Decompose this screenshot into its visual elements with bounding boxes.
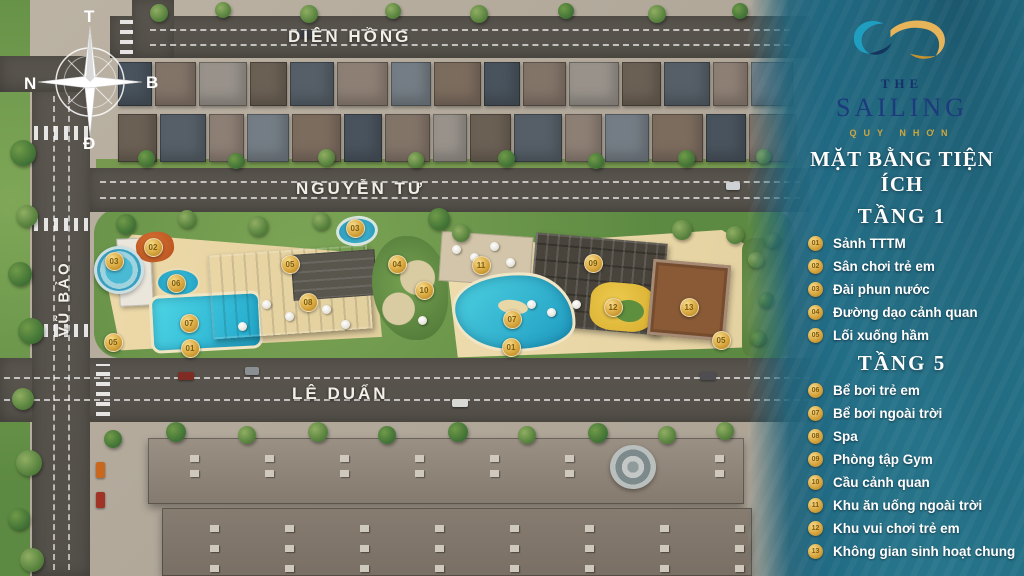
roof-vent <box>210 545 219 552</box>
compass-rose: T B Đ N <box>24 10 164 150</box>
roof-vent <box>510 565 519 572</box>
townhouse <box>391 62 431 106</box>
map-marker-01: 01 <box>181 339 200 358</box>
legend-coin-icon: 12 <box>808 521 823 536</box>
umbrella-icon <box>238 322 247 331</box>
car-icon <box>700 372 716 380</box>
tree-icon <box>378 426 396 444</box>
tree-icon <box>726 226 744 244</box>
legend-label: Phòng tập Gym <box>833 452 933 467</box>
tree-icon <box>178 210 196 228</box>
tree-icon <box>248 216 268 236</box>
tree-icon <box>732 3 748 19</box>
brand-location: QUY NHƠN <box>786 128 1018 138</box>
street-le-duan <box>0 358 820 422</box>
roof-vent <box>510 525 519 532</box>
roof-vent <box>735 565 744 572</box>
roof-vent <box>585 565 594 572</box>
legend-list-2: 06Bể bơi trẻ em07Bể bơi ngoài trời08Spa0… <box>808 383 1018 559</box>
legend-coin-icon: 09 <box>808 452 823 467</box>
tree-icon <box>166 422 186 442</box>
townhouse <box>160 114 206 162</box>
car-icon <box>178 372 194 380</box>
tree-icon <box>518 426 536 444</box>
umbrella-icon <box>547 308 556 317</box>
map-marker-06: 06 <box>167 274 186 293</box>
car-icon <box>726 182 740 190</box>
legend-item-07: 07Bể bơi ngoài trời <box>808 406 1018 421</box>
tree-icon <box>588 423 608 443</box>
map-marker-12: 12 <box>604 298 623 317</box>
tree-icon <box>588 153 604 169</box>
street-label-le-duan: LÊ DUẨN <box>292 384 389 404</box>
tree-icon <box>558 3 574 19</box>
tree-icon <box>20 548 44 572</box>
legend-label: Sảnh TTTM <box>833 236 906 251</box>
tree-icon <box>318 149 335 166</box>
tree-icon <box>18 318 44 344</box>
plaza-fountain <box>610 445 656 489</box>
street-dien-hong <box>110 16 810 58</box>
brand-logo: THE SAILING QUY NHƠN <box>786 16 1018 138</box>
car-icon <box>96 492 105 508</box>
legend-item-04: 04Đường dạo cảnh quan <box>808 305 1018 320</box>
townhouse <box>569 62 619 106</box>
tree-icon <box>312 212 330 230</box>
roof-vent <box>510 545 519 552</box>
townhouse <box>434 62 481 106</box>
roof-vent <box>660 545 669 552</box>
roof-vent <box>265 470 274 477</box>
roof-vent <box>360 565 369 572</box>
townhouse <box>484 62 520 106</box>
car-icon <box>245 367 259 375</box>
map-marker-01: 01 <box>502 338 521 357</box>
legend-coin-icon: 05 <box>808 328 823 343</box>
roof-vent <box>210 525 219 532</box>
roof-vent <box>715 455 724 462</box>
compass-letter-right: B <box>146 73 158 92</box>
legend-item-13: 13Không gian sinh hoạt chung <box>808 544 1018 559</box>
townhouse <box>247 114 289 162</box>
umbrella-icon <box>452 245 461 254</box>
roof-vent <box>210 565 219 572</box>
townhouse <box>514 114 562 162</box>
roof-vent <box>585 525 594 532</box>
tree-icon <box>138 150 155 167</box>
roof-vent <box>340 455 349 462</box>
legend-label: Đài phun nước <box>833 282 930 297</box>
brand-name: SAILING <box>786 93 1018 123</box>
floor-heading-2: TẦNG 5 <box>786 351 1018 376</box>
townhouse <box>664 62 710 106</box>
map-marker-08: 08 <box>299 293 318 312</box>
legend-coin-icon: 07 <box>808 406 823 421</box>
legend-coin-icon: 04 <box>808 305 823 320</box>
tree-icon <box>104 430 122 448</box>
townhouse <box>605 114 649 162</box>
map-marker-04: 04 <box>388 255 407 274</box>
legend-coin-icon: 08 <box>808 429 823 444</box>
townhouse <box>713 62 748 106</box>
masterplan-image: DIÊN HỒNG NGUYỄN TƯ LÊ DUẨN VŨ BẢO T B Đ… <box>0 0 1024 576</box>
tree-icon <box>16 205 38 227</box>
tree-icon <box>408 152 424 168</box>
sailing-wave-icon <box>844 16 960 68</box>
brand-the: THE <box>786 76 1018 92</box>
roof-vent <box>285 525 294 532</box>
legend-label: Bể bơi ngoài trời <box>833 406 942 421</box>
legend-coin-icon: 01 <box>808 236 823 251</box>
tree-icon <box>238 426 256 444</box>
umbrella-icon <box>322 305 331 314</box>
tree-icon <box>8 262 32 286</box>
map-marker-03: 03 <box>105 252 124 271</box>
legend-label: Đường dạo cảnh quan <box>833 305 978 320</box>
tree-icon <box>648 5 666 23</box>
legend-item-09: 09Phòng tập Gym <box>808 452 1018 467</box>
map-marker-13: 13 <box>680 298 699 317</box>
legend-coin-icon: 11 <box>808 498 823 513</box>
legend-item-03: 03Đài phun nước <box>808 282 1018 297</box>
legend-label: Bể bơi trẻ em <box>833 383 920 398</box>
legend-coin-icon: 03 <box>808 282 823 297</box>
roof-vent <box>735 525 744 532</box>
legend-sections: TẦNG 101Sảnh TTTM02Sân chơi trẻ em03Đài … <box>786 204 1018 559</box>
townhouse <box>622 62 661 106</box>
roof-vent <box>490 470 499 477</box>
map-marker-11: 11 <box>472 256 491 275</box>
legend-coin-icon: 10 <box>808 475 823 490</box>
legend-coin-icon: 02 <box>808 259 823 274</box>
legend-coin-icon: 06 <box>808 383 823 398</box>
tree-icon <box>308 422 328 442</box>
roof-vent <box>565 455 574 462</box>
roof-vent <box>435 565 444 572</box>
tree-icon <box>672 220 692 240</box>
tree-icon <box>300 5 318 23</box>
legend-list-1: 01Sảnh TTTM02Sân chơi trẻ em03Đài phun n… <box>808 236 1018 343</box>
compass-letter-top: T <box>84 10 95 26</box>
map-marker-05: 05 <box>281 255 300 274</box>
legend-item-10: 10Cầu cảnh quan <box>808 475 1018 490</box>
tree-icon <box>228 153 244 169</box>
tree-icon <box>716 422 734 440</box>
tree-icon <box>8 508 30 530</box>
floor-heading-1: TẦNG 1 <box>786 204 1018 229</box>
roof-vent <box>415 470 424 477</box>
map-marker-02: 02 <box>144 238 163 257</box>
tree-icon <box>12 388 34 410</box>
panel-title: MẶT BẰNG TIỆN ÍCH <box>786 147 1018 197</box>
map-marker-10: 10 <box>415 281 434 300</box>
map-marker-05: 05 <box>104 333 123 352</box>
townhouse <box>337 62 388 106</box>
legend-label: Cầu cảnh quan <box>833 475 930 490</box>
roof-vent <box>660 525 669 532</box>
legend-label: Khu ăn uống ngoài trời <box>833 498 982 513</box>
roof-vent <box>415 455 424 462</box>
umbrella-icon <box>262 300 271 309</box>
legend-coin-icon: 13 <box>808 544 823 559</box>
roof-vent <box>490 455 499 462</box>
map-marker-03: 03 <box>346 219 365 238</box>
street-label-dien-hong: DIÊN HỒNG <box>288 27 411 47</box>
roof-vent <box>735 545 744 552</box>
tree-icon <box>470 5 488 23</box>
legend-label: Sân chơi trẻ em <box>833 259 935 274</box>
townhouse <box>344 114 382 162</box>
roof-vent <box>660 565 669 572</box>
roof-vent <box>360 525 369 532</box>
townhouse <box>199 62 247 106</box>
umbrella-icon <box>418 316 427 325</box>
tree-icon <box>116 214 136 234</box>
legend-item-06: 06Bể bơi trẻ em <box>808 383 1018 398</box>
compass-letter-left: N <box>24 74 36 93</box>
car-icon <box>96 462 105 478</box>
umbrella-icon <box>341 320 350 329</box>
tree-icon <box>448 422 468 442</box>
townhouse <box>250 62 287 106</box>
umbrella-icon <box>572 300 581 309</box>
tree-icon <box>428 208 450 230</box>
legend-item-08: 08Spa <box>808 429 1018 444</box>
map-marker-09: 09 <box>584 254 603 273</box>
roof-vent <box>435 525 444 532</box>
map-marker-07: 07 <box>180 314 199 333</box>
legend-item-01: 01Sảnh TTTM <box>808 236 1018 251</box>
tree-icon <box>498 150 515 167</box>
townhouse <box>706 114 746 162</box>
roof-vent <box>265 455 274 462</box>
legend-label: Lối xuống hầm <box>833 328 929 343</box>
townhouse <box>385 114 430 162</box>
legend-label: Spa <box>833 429 858 444</box>
tree-icon <box>678 150 695 167</box>
tree-icon <box>385 3 401 19</box>
townhouse <box>433 114 467 162</box>
compass-letter-bottom: Đ <box>83 134 95 150</box>
tree-icon <box>215 2 231 18</box>
townhouse <box>290 62 334 106</box>
tree-icon <box>658 426 676 444</box>
umbrella-icon <box>490 242 499 251</box>
roof-vent <box>190 455 199 462</box>
roof-vent <box>585 545 594 552</box>
umbrella-icon <box>506 258 515 267</box>
street-nguyen-tu <box>88 168 810 212</box>
roof-vent <box>360 545 369 552</box>
legend-label: Không gian sinh hoạt chung <box>833 544 1015 559</box>
map-marker-05: 05 <box>712 331 731 350</box>
roof-vent <box>715 470 724 477</box>
map-marker-07: 07 <box>503 310 522 329</box>
tree-icon <box>16 450 42 476</box>
roof-vent <box>285 565 294 572</box>
roof-vent <box>190 470 199 477</box>
legend-item-05: 05Lối xuống hầm <box>808 328 1018 343</box>
tree-icon <box>452 224 470 242</box>
street-label-vu-bao: VŨ BẢO <box>56 260 73 336</box>
townhouse <box>523 62 566 106</box>
car-icon <box>452 399 468 407</box>
roof-vent <box>435 545 444 552</box>
umbrella-icon <box>527 300 536 309</box>
roof-vent <box>340 470 349 477</box>
legend-panel: THE SAILING QUY NHƠN MẶT BẰNG TIỆN ÍCH T… <box>786 0 1018 576</box>
legend-item-11: 11Khu ăn uống ngoài trời <box>808 498 1018 513</box>
legend-item-12: 12Khu vui chơi trẻ em <box>808 521 1018 536</box>
umbrella-icon <box>285 312 294 321</box>
roof-vent <box>285 545 294 552</box>
street-label-nguyen-tu: NGUYỄN TƯ <box>296 179 425 199</box>
roof-vent <box>565 470 574 477</box>
legend-label: Khu vui chơi trẻ em <box>833 521 960 536</box>
legend-item-02: 02Sân chơi trẻ em <box>808 259 1018 274</box>
